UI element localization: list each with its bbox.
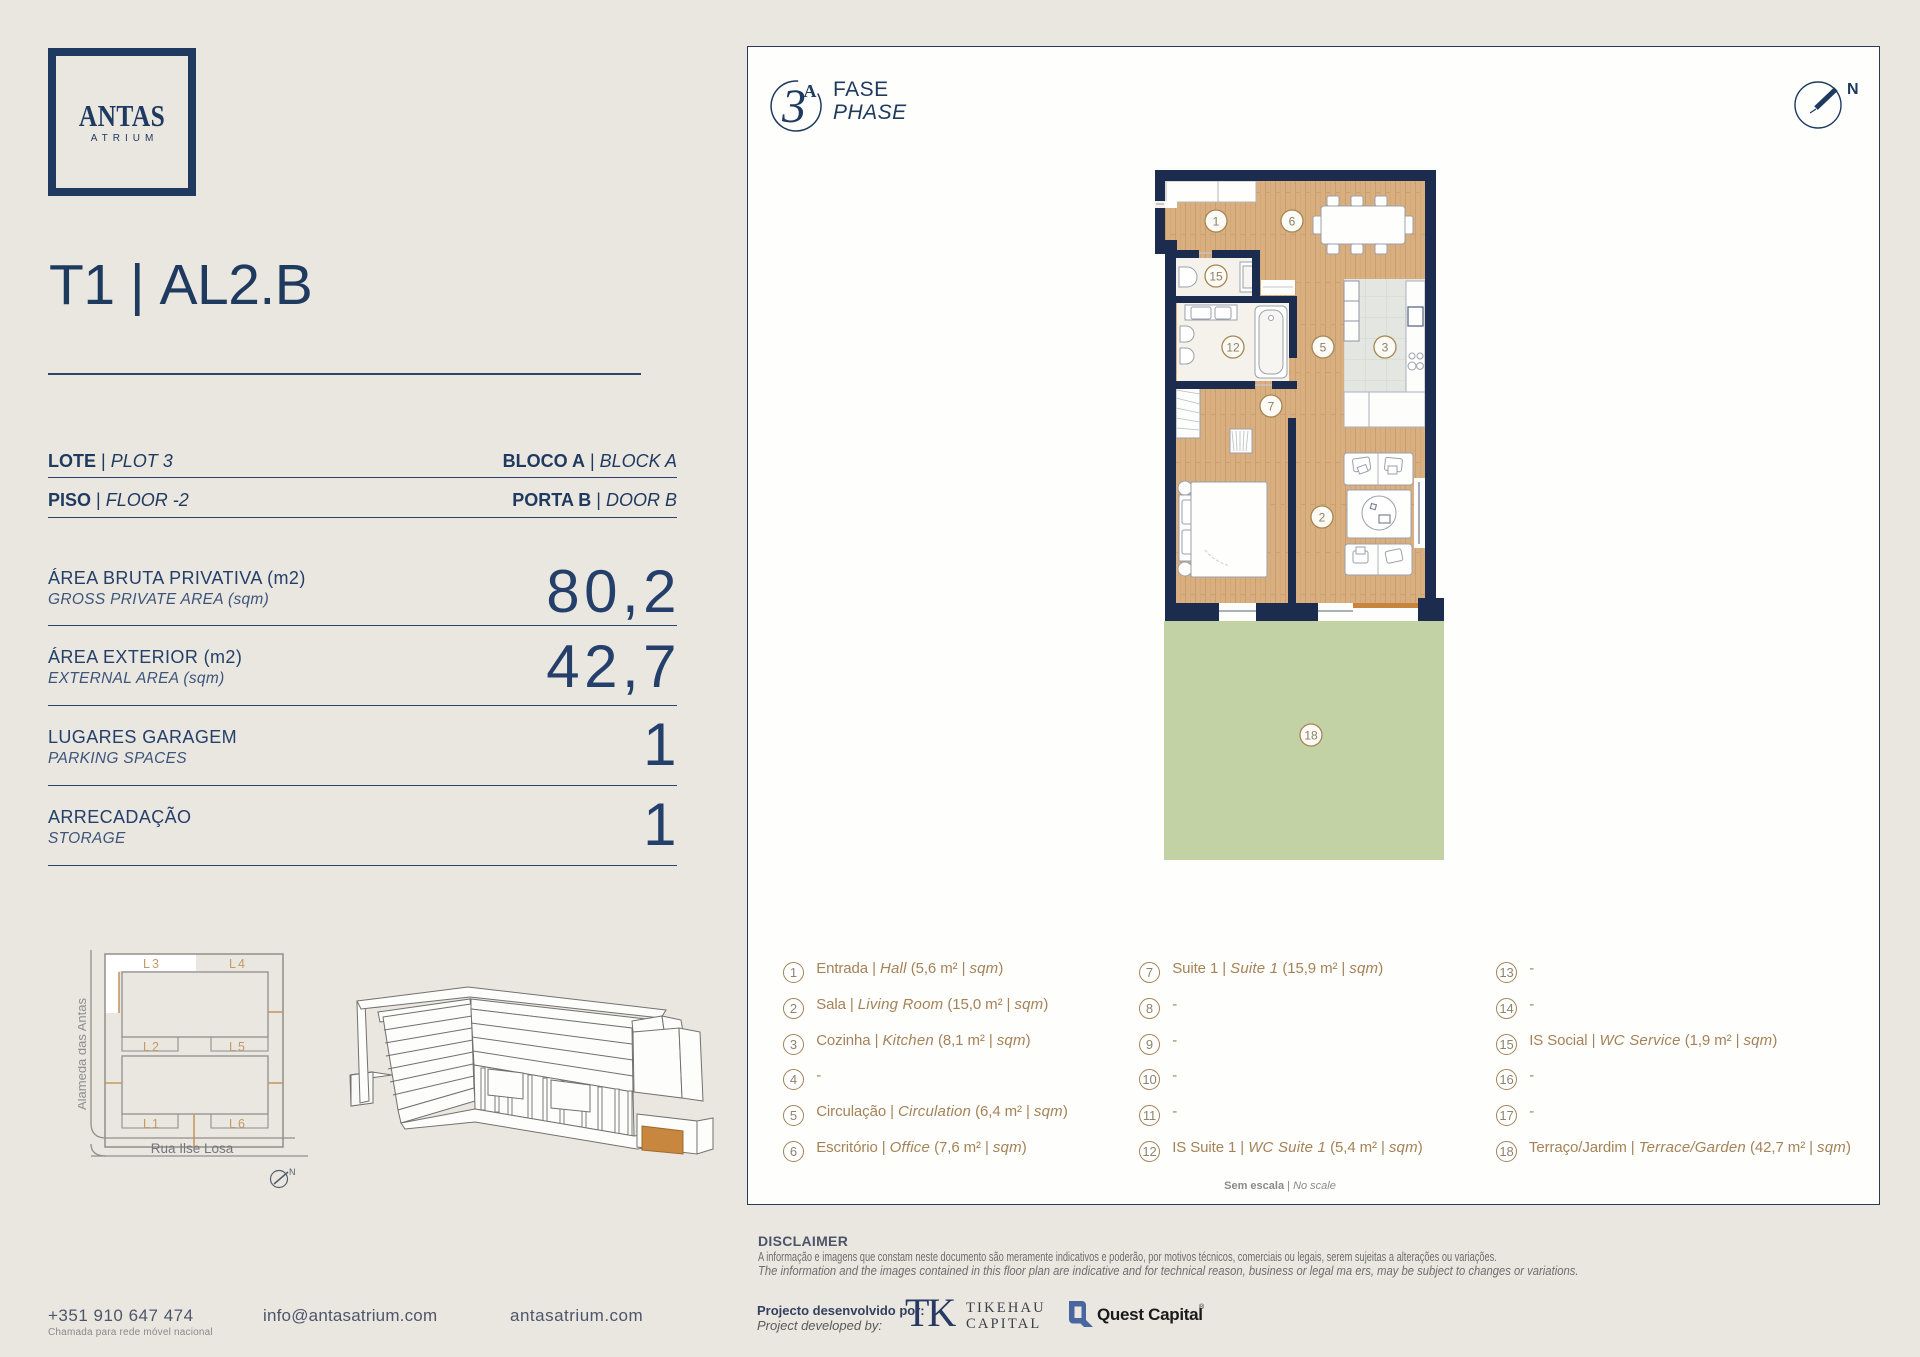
svg-text:TK: TK: [905, 1295, 956, 1335]
svg-text:L5: L5: [229, 1040, 247, 1054]
svg-text:L3: L3: [143, 957, 161, 971]
svg-text:12: 12: [1226, 341, 1240, 355]
svg-text:L1: L1: [143, 1117, 161, 1131]
svg-text:6: 6: [1289, 215, 1296, 229]
svg-text:7: 7: [1268, 400, 1275, 414]
svg-text:A: A: [804, 81, 817, 101]
svg-text:TIKEHAU: TIKEHAU: [966, 1300, 1046, 1316]
svg-text:Alameda das Antas: Alameda das Antas: [78, 997, 89, 1110]
svg-text:5: 5: [1320, 341, 1327, 355]
svg-text:Quest Capital: Quest Capital: [1097, 1305, 1203, 1324]
svg-text:L6: L6: [229, 1117, 247, 1131]
svg-text:Rua Ilse Losa: Rua Ilse Losa: [151, 1141, 234, 1156]
svg-text:L2: L2: [143, 1040, 161, 1054]
svg-text:15: 15: [1209, 270, 1223, 284]
svg-text:3: 3: [781, 80, 806, 133]
svg-text:CAPITAL: CAPITAL: [966, 1316, 1041, 1332]
svg-text:N: N: [289, 1167, 296, 1177]
svg-text:3: 3: [1382, 341, 1389, 355]
svg-text:L4: L4: [229, 957, 247, 971]
svg-text:18: 18: [1304, 729, 1318, 743]
svg-text:2: 2: [1319, 511, 1326, 525]
svg-text:®: ®: [1199, 1303, 1205, 1311]
svg-text:N: N: [1847, 81, 1859, 98]
svg-text:1: 1: [1213, 215, 1220, 229]
